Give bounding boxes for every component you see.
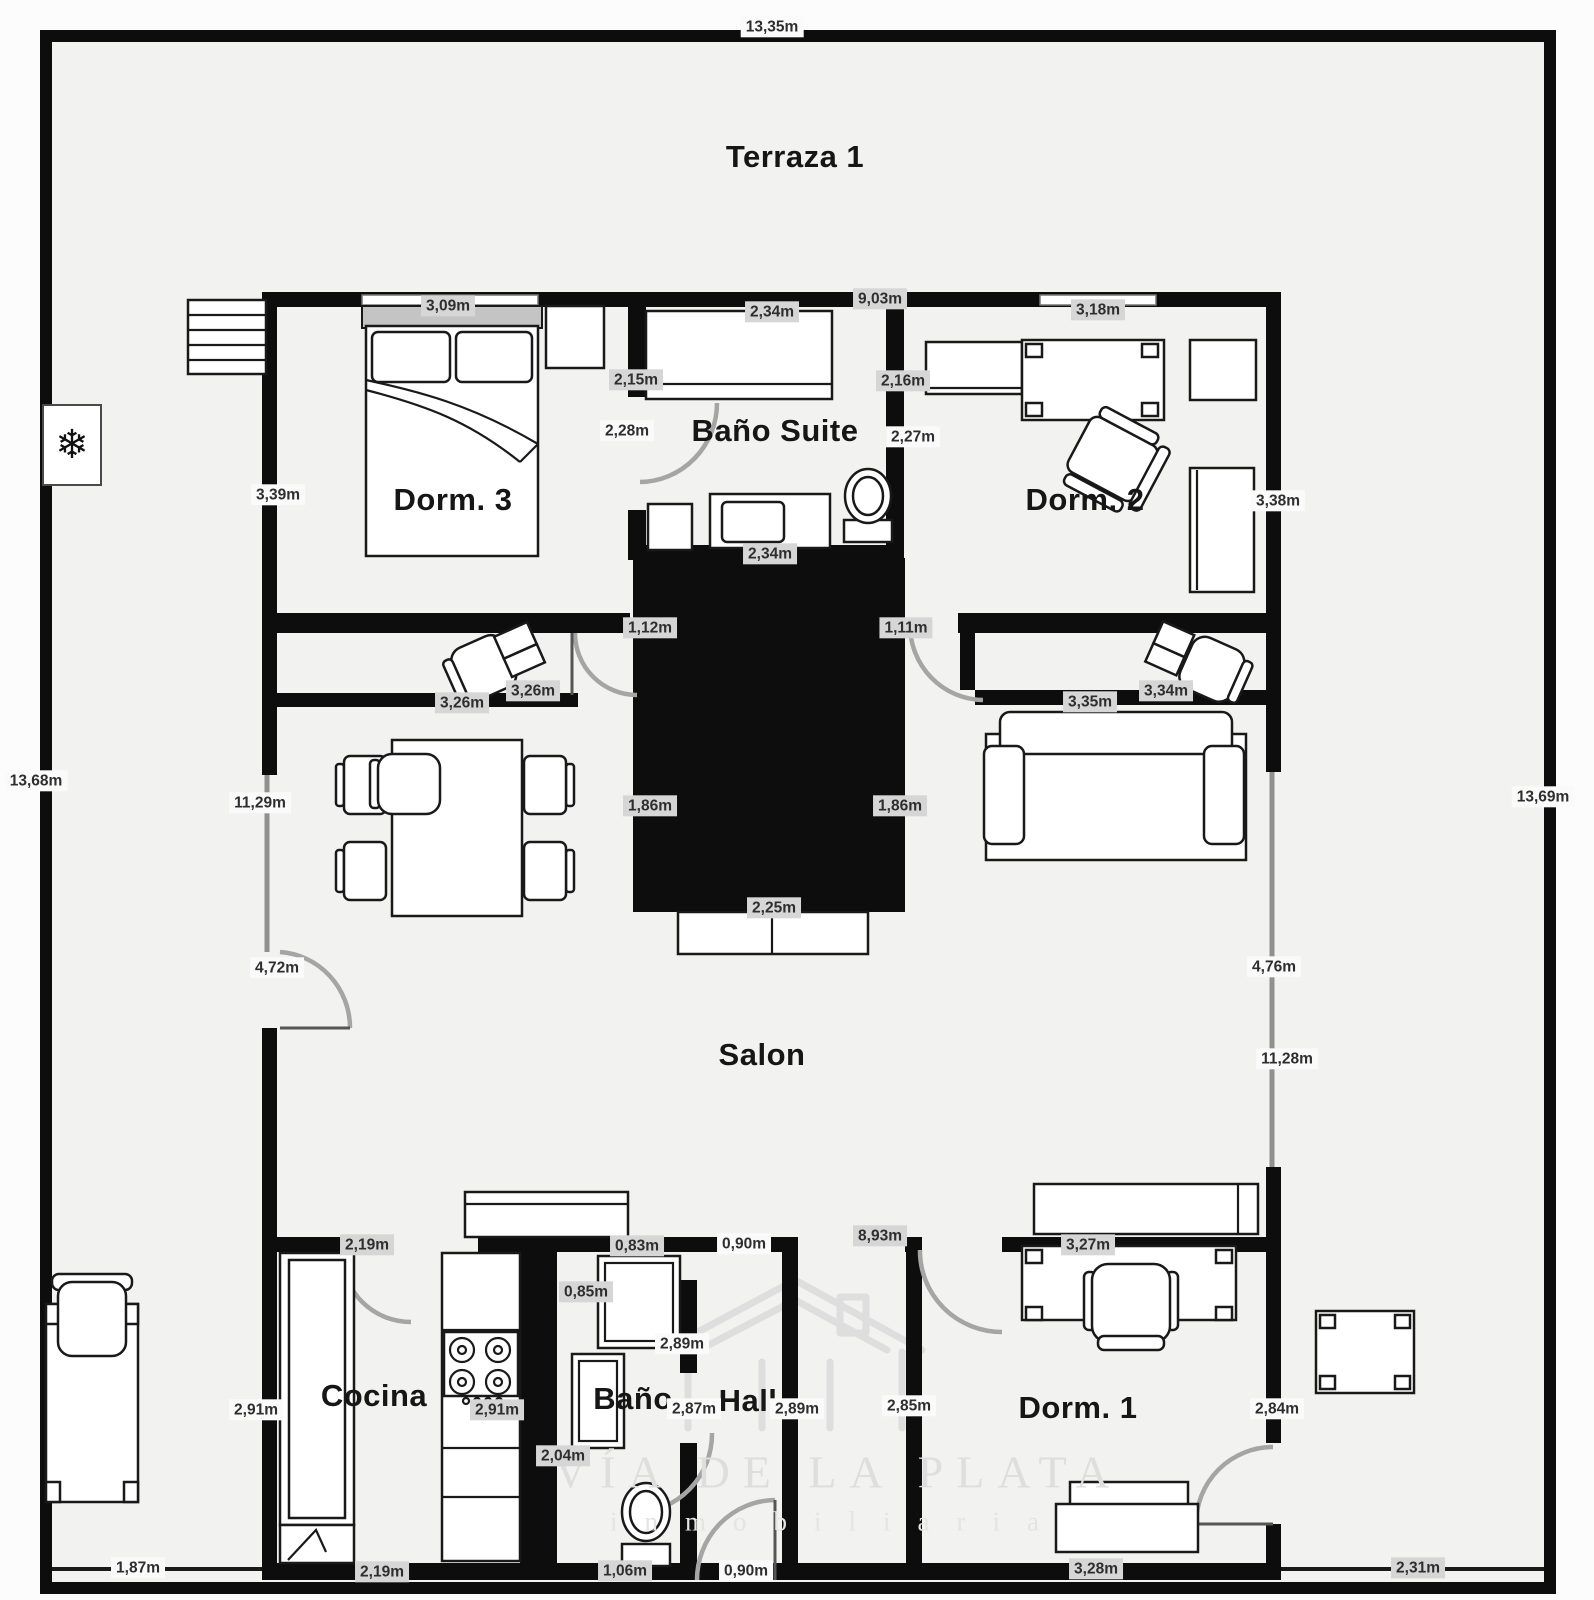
- dimension-label: 3,28m: [1069, 1558, 1123, 1579]
- dimension-label: 2,28m: [600, 420, 654, 441]
- dimension-label: 2,87m: [667, 1398, 721, 1419]
- dimension-label: 3,26m: [506, 680, 560, 701]
- dimension-label: 2,19m: [340, 1234, 394, 1255]
- dimension-label: 3,39m: [251, 484, 305, 505]
- dimension-label: 3,35m: [1063, 691, 1117, 712]
- labels-layer: Terraza 1Dorm. 3Baño SuiteDorm. 2SalonCo…: [0, 0, 1594, 1600]
- room-label: Cocina: [321, 1378, 427, 1414]
- dimension-label: 2,15m: [609, 369, 663, 390]
- dimension-label: 2,85m: [882, 1395, 936, 1416]
- room-label: Dorm. 3: [394, 482, 513, 518]
- dimension-label: 1,86m: [873, 795, 927, 816]
- dimension-label: 2,27m: [886, 426, 940, 447]
- dimension-label: 2,34m: [743, 543, 797, 564]
- dimension-label: 2,89m: [655, 1333, 709, 1354]
- dimension-label: 3,18m: [1071, 299, 1125, 320]
- dimension-label: 2,89m: [770, 1398, 824, 1419]
- dimension-label: 1,06m: [598, 1560, 652, 1581]
- floor-plan: ❄ VÍA DE LA PLATA inmobiliaria Terraza 1…: [0, 0, 1594, 1600]
- dimension-label: 3,34m: [1139, 680, 1193, 701]
- room-label: Baño Suite: [692, 413, 859, 449]
- dimension-label: 11,28m: [1256, 1048, 1318, 1069]
- dimension-label: 8,93m: [853, 1225, 907, 1246]
- dimension-label: 0,85m: [559, 1281, 613, 1302]
- dimension-label: 0,90m: [717, 1233, 771, 1254]
- dimension-label: 13,68m: [5, 770, 68, 791]
- room-label: Terraza 1: [726, 139, 864, 175]
- dimension-label: 3,26m: [435, 692, 489, 713]
- dimension-label: 2,91m: [470, 1399, 524, 1420]
- dimension-label: 2,25m: [747, 897, 801, 918]
- dimension-label: 3,27m: [1061, 1234, 1115, 1255]
- room-label: Dorm. 2: [1026, 482, 1145, 518]
- room-label: Baño: [593, 1381, 673, 1417]
- room-label: Hall: [719, 1383, 778, 1419]
- dimension-label: 4,72m: [250, 957, 304, 978]
- dimension-label: 0,83m: [610, 1235, 664, 1256]
- dimension-label: 2,91m: [229, 1399, 283, 1420]
- dimension-label: 1,11m: [879, 617, 932, 638]
- dimension-label: 2,31m: [1391, 1557, 1445, 1578]
- dimension-label: 13,69m: [1512, 786, 1575, 807]
- dimension-label: 0,90m: [719, 1560, 773, 1581]
- dimension-label: 11,29m: [229, 792, 291, 813]
- dimension-label: 13,35m: [741, 16, 804, 37]
- room-label: Salon: [719, 1037, 806, 1073]
- dimension-label: 2,34m: [745, 301, 799, 322]
- dimension-label: 3,09m: [421, 295, 475, 316]
- dimension-label: 3,38m: [1251, 490, 1305, 511]
- dimension-label: 4,76m: [1247, 956, 1301, 977]
- dimension-label: 1,87m: [111, 1557, 165, 1578]
- dimension-label: 2,19m: [355, 1561, 409, 1582]
- room-label: Dorm. 1: [1019, 1390, 1138, 1426]
- dimension-label: 1,86m: [623, 795, 677, 816]
- dimension-label: 2,04m: [536, 1445, 590, 1466]
- dimension-label: 2,84m: [1250, 1398, 1304, 1419]
- dimension-label: 2,16m: [876, 370, 930, 391]
- dimension-label: 9,03m: [853, 288, 907, 309]
- dimension-label: 1,12m: [623, 617, 677, 638]
